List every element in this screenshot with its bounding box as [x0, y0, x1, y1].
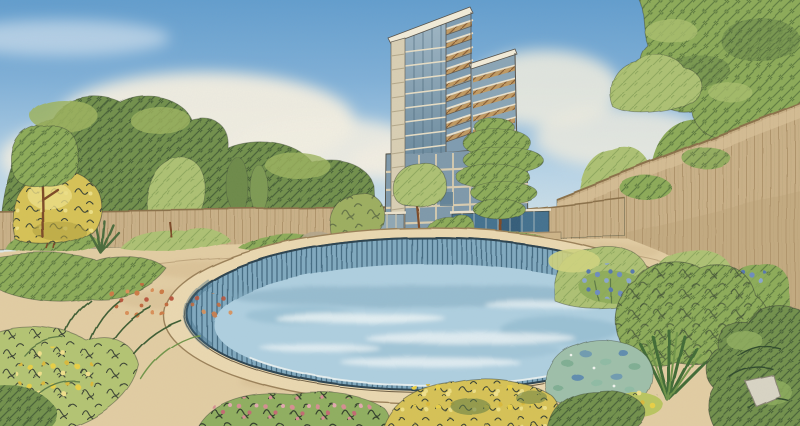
paper-texture — [0, 0, 800, 426]
watercolor-rendering: Hand-drawn watercolor and ink rendering … — [0, 0, 800, 426]
